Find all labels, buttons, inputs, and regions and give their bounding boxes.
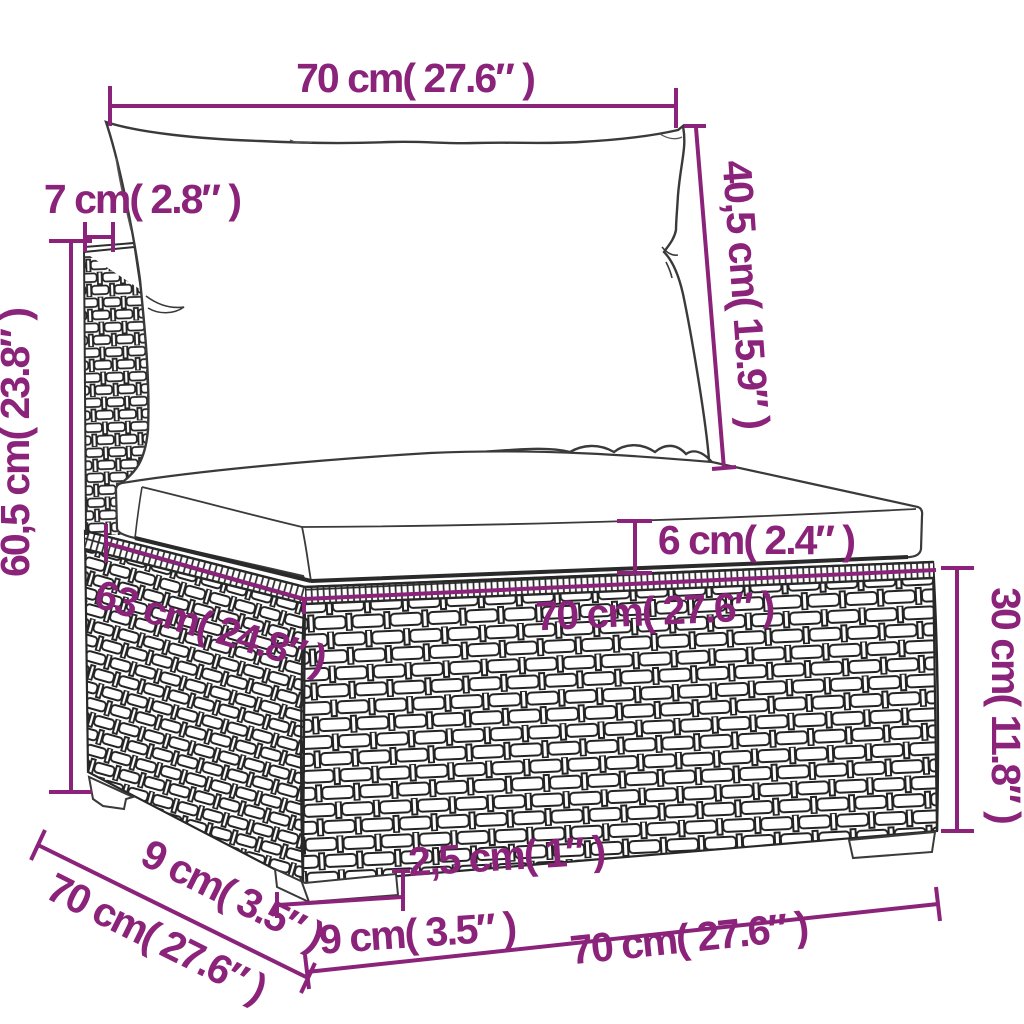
- svg-text:7 cm( 2.8″ ): 7 cm( 2.8″ ): [44, 176, 241, 222]
- svg-text:6 cm( 2.4″ ): 6 cm( 2.4″ ): [658, 517, 855, 563]
- svg-text:60,5 cm( 23.8″ ): 60,5 cm( 23.8″ ): [0, 309, 38, 577]
- svg-text:30 cm( 11.8″ ): 30 cm( 11.8″ ): [983, 587, 1024, 823]
- svg-text:70 cm( 27.6″ ): 70 cm( 27.6″ ): [296, 55, 534, 101]
